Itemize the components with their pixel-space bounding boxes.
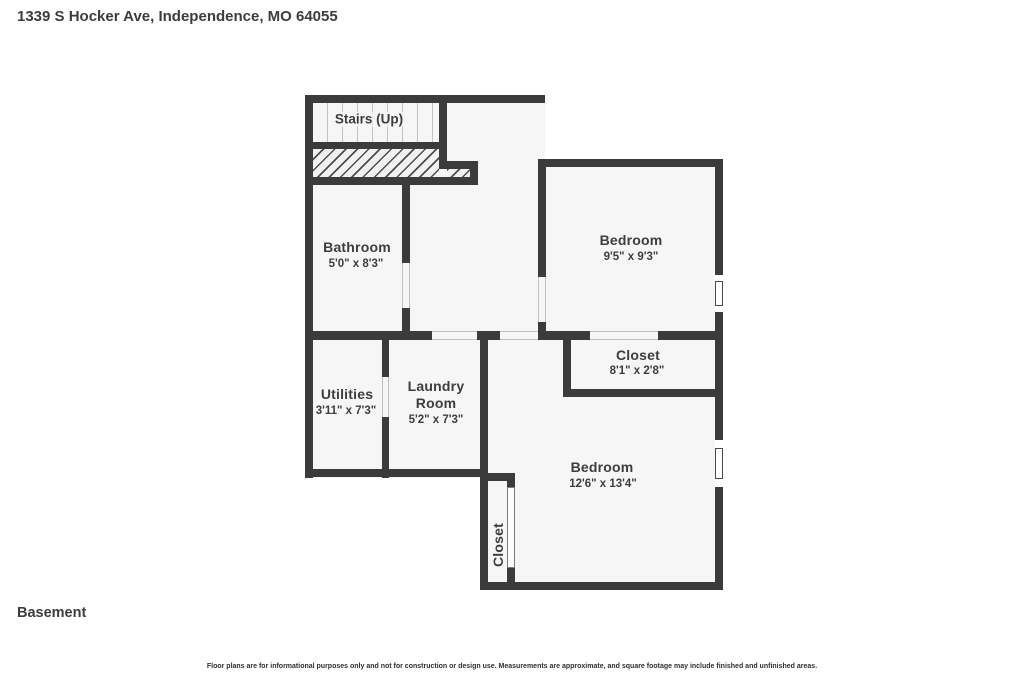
bedroom-upper-label: Bedroom [600,232,663,248]
wall-closet-upper-bottom [563,389,723,397]
door-opening-utilities [382,377,389,417]
bedroom-lower-dimensions: 12'6" x 13'4" [569,478,637,490]
stairs-label: Stairs (Up) [331,112,407,127]
window-bedroom-upper-frame [715,281,723,306]
closet-lower-door [507,487,515,568]
wall-laundry-right [480,331,488,478]
floor-plan-page: 1339 S Hocker Ave, Independence, MO 6405… [0,0,1024,682]
wall-closet-upper-left [563,331,571,397]
bedroom-upper-dimensions: 9'5" x 9'3" [604,251,659,263]
wall-top [305,95,545,103]
bathroom-dimensions: 5'0" x 8'3" [329,258,384,270]
bedroom-lower-label: Bedroom [571,459,634,475]
closet-upper-label: Closet [616,347,660,363]
floor-name: Basement [17,605,86,621]
window-bedroom-lower-frame [715,448,723,479]
floor-plan: Stairs (Up) Bathroom 5'0" x 8'3" Bedroom… [0,0,1024,682]
disclaimer-text: Floor plans are for informational purpos… [207,663,817,670]
wall-bedroom-upper-top [538,159,723,167]
under-stairs-hatch [311,149,439,178]
closet-lower-label: Closet [490,523,506,567]
door-opening-closet-upper [590,331,658,340]
wall-bathroom-right [402,177,410,339]
laundry-dimensions: 5'2" x 7'3" [409,414,464,426]
wall-closet-lower-left [480,469,488,590]
wall-right-outer [715,159,723,590]
wall-below-stairs [305,142,447,149]
laundry-label-line2: Room [416,395,456,411]
wall-closet-lower-stub-bottom [507,567,515,590]
wall-utilities-bottom [305,469,488,477]
bathroom-label: Bathroom [323,239,391,255]
wall-closet-lower-stub-top [507,473,515,488]
wall-bathroom-top [305,177,478,185]
wall-stairs-right [439,95,447,168]
utilities-dimensions: 3'11" x 7'3" [316,405,377,417]
passage-opening-hall [500,331,538,340]
door-opening-bedroom-upper [538,277,546,322]
wall-left-outer [305,95,313,478]
door-opening-laundry [432,331,477,340]
laundry-label-line1: Laundry [408,378,465,394]
utilities-label: Utilities [321,386,373,402]
closet-upper-dimensions: 8'1" x 2'8" [610,365,665,377]
wall-bottom-outer [480,582,723,590]
door-opening-bathroom [402,263,410,308]
